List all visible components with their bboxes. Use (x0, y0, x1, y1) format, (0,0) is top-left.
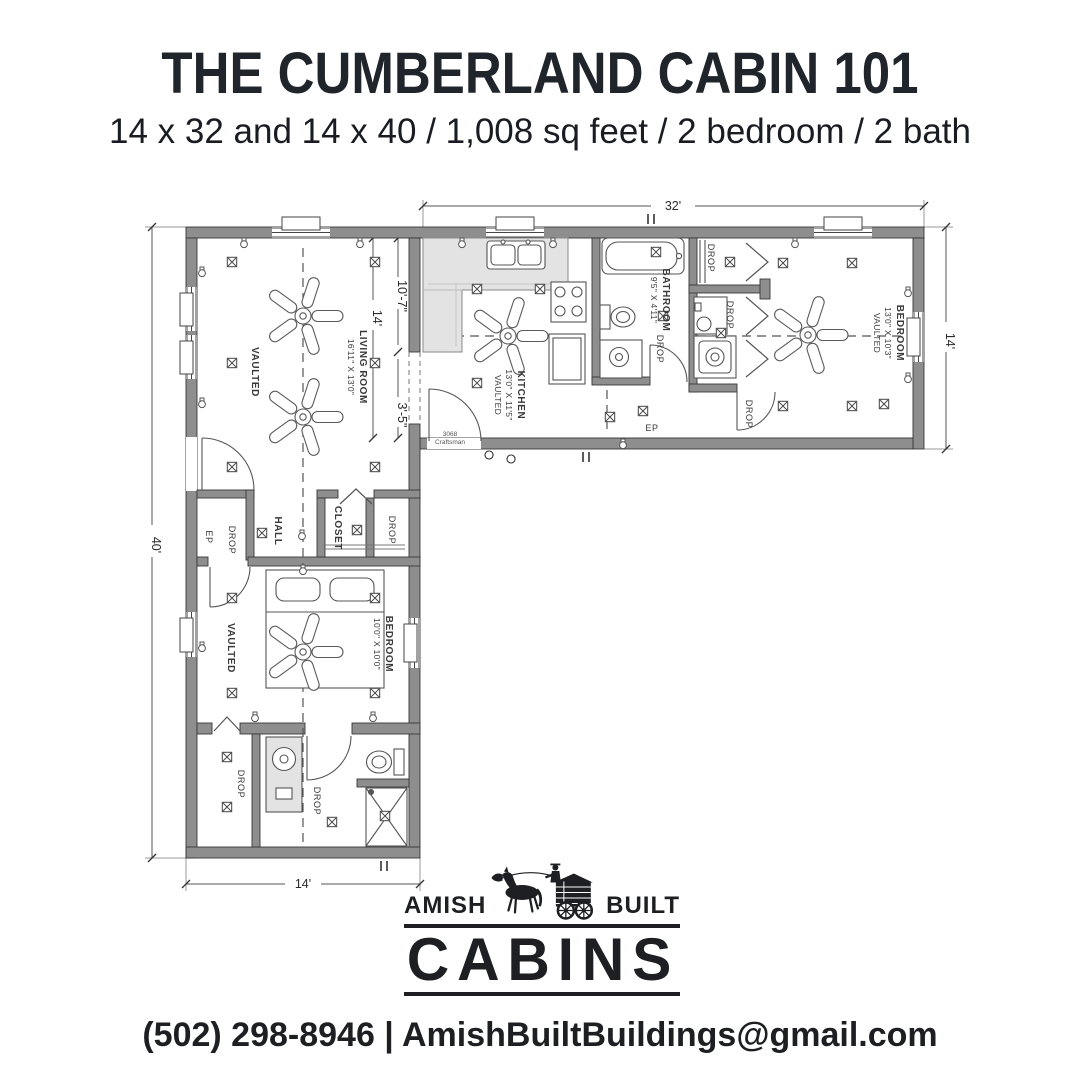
junction-box-icon (472, 378, 481, 387)
junction-box-icon (778, 401, 787, 410)
stove-icon (551, 282, 586, 322)
bedroom-main-door-swing (737, 392, 775, 430)
logo-word-main: CABINS (407, 930, 677, 990)
drop-label: DROP (312, 787, 322, 815)
toilet-icon (367, 749, 405, 775)
kitchen-counter (423, 238, 586, 384)
svg-text:VAULTED: VAULTED (493, 375, 503, 415)
wall-light-icon (199, 642, 206, 652)
ceiling-fan-icon (267, 276, 343, 355)
junction-box-icon (370, 257, 379, 266)
junction-box-icon (847, 258, 856, 267)
svg-text:3068: 3068 (443, 431, 458, 438)
bathroom-main-label: BATHROOM 9'5" X 4'11" (649, 269, 671, 332)
poster: THE CUMBERLAND CABIN 101 14 x 32 and 14 … (0, 0, 1080, 1080)
junction-box-icon (222, 752, 231, 761)
junction-box-icon (380, 811, 389, 820)
junction-box-icon (327, 817, 336, 826)
svg-text:VAULTED: VAULTED (225, 623, 236, 673)
junction-box-icon (472, 284, 481, 293)
svg-text:BEDROOM: BEDROOM (383, 616, 394, 672)
kitchen-label: KITCHEN 13'0" X 11'5" VAULTED (493, 369, 526, 420)
wall-light-icon (199, 398, 206, 408)
svg-text:10'-7": 10'-7" (395, 280, 409, 312)
svg-text:VAULTED: VAULTED (249, 347, 260, 397)
wall-light-icon (299, 530, 306, 540)
bath-sink-icon (600, 340, 642, 378)
svg-text:BATHROOM: BATHROOM (660, 269, 671, 332)
junction-box-icon (370, 688, 379, 697)
wall-light-icon (459, 238, 466, 248)
junction-box-icon (778, 258, 787, 267)
drop-label: DROP (387, 516, 397, 544)
junction-box-icon (605, 412, 614, 421)
wall-light-icon (905, 287, 912, 297)
wall-light-icon (620, 439, 627, 449)
bath-second-door-swing (307, 736, 351, 780)
washer-icon (694, 336, 736, 378)
contact-line: (502) 298-8946 | AmishBuiltBuildings@gma… (0, 1016, 1080, 1055)
svg-text:BEDROOM: BEDROOM (894, 305, 905, 361)
junction-box-icon (638, 406, 647, 415)
brand-logo: AMISH (404, 856, 680, 996)
svg-text:9'5" X 4'11": 9'5" X 4'11" (649, 277, 659, 323)
drop-label: DROP (744, 400, 754, 428)
svg-text:14': 14' (370, 310, 384, 326)
wall-light-icon (241, 238, 248, 248)
svg-text:Craftsman: Craftsman (435, 439, 465, 446)
svg-text:13'0" X 11'5": 13'0" X 11'5" (504, 369, 514, 420)
svg-text:KITCHEN: KITCHEN (515, 371, 526, 420)
wall-light-icon (199, 267, 206, 277)
bedroom-main-label: BEDROOM 13'0" X 10'3" VAULTED (872, 305, 905, 361)
horse-and-wagon-icon (486, 856, 606, 922)
junction-box-icon (370, 593, 379, 602)
toilet-icon (600, 305, 635, 329)
junction-box-icon (716, 328, 725, 337)
wall-light-icon (252, 712, 259, 722)
door-tag: 3068 Craftsman (435, 431, 465, 446)
svg-text:32': 32' (665, 199, 681, 213)
ceiling-fan-icon (267, 377, 343, 456)
drop-label: DROP (655, 335, 665, 363)
junction-box-icon (879, 399, 888, 408)
wall-light-icon (905, 373, 912, 383)
junction-box-icon (847, 401, 856, 410)
junction-box-icon (227, 358, 236, 367)
svg-text:10'0" X 10'0": 10'0" X 10'0" (372, 618, 382, 670)
bifold-door-icon (746, 243, 768, 377)
junction-box-icon (352, 525, 361, 534)
closet-label: CLOSET (332, 506, 343, 550)
wall-light-icon (550, 238, 557, 248)
drop-label: DROP (725, 301, 735, 329)
svg-text:LIVING ROOM: LIVING ROOM (357, 330, 368, 404)
electrical-panel-label: EP (204, 530, 214, 543)
drop-label: DROP (236, 770, 246, 798)
logo-word-right: BUILT (606, 892, 680, 922)
svg-text:40': 40' (149, 537, 163, 553)
junction-box-icon (257, 528, 266, 537)
svg-text:3'-5": 3'-5" (395, 403, 409, 428)
vanity-sink-icon (266, 737, 302, 812)
cased-opening (409, 352, 420, 424)
wall-light-icon (792, 238, 799, 248)
svg-text:16'11" X 13'0": 16'11" X 13'0" (346, 339, 356, 395)
kitchen-sink-icon (487, 240, 545, 269)
junction-box-icon (222, 802, 231, 811)
ceiling-fan-icon (772, 295, 848, 374)
junction-box-icon (651, 247, 660, 256)
svg-text:VAULTED: VAULTED (872, 313, 882, 353)
junction-box-icon (227, 688, 236, 697)
junction-box-icon (227, 462, 236, 471)
wall-light-icon (357, 238, 364, 248)
junction-box-icon (227, 593, 236, 602)
junction-box-icon (725, 257, 734, 266)
drop-label: DROP (706, 244, 716, 272)
svg-text:14': 14' (943, 333, 957, 349)
junction-box-icon (370, 358, 379, 367)
fridge-icon (549, 334, 585, 384)
logo-word-left: AMISH (404, 892, 486, 922)
junction-box-icon (370, 462, 379, 471)
junction-box-icon (227, 257, 236, 266)
wall-light-icon (370, 712, 377, 722)
hall-label: HALL (272, 516, 283, 545)
junction-box-icon (535, 284, 544, 293)
wall-light-icon (300, 565, 307, 575)
electrical-panel-label: EP (645, 423, 658, 433)
svg-text:13'0" X 10'3": 13'0" X 10'3" (883, 307, 893, 359)
ceiling-fan-icon (472, 296, 548, 375)
drop-label: DROP (227, 526, 237, 554)
svg-text:14': 14' (295, 877, 311, 891)
